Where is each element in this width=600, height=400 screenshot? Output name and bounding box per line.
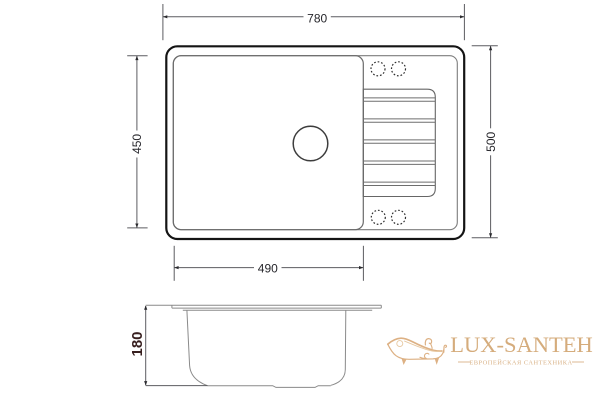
svg-text:ЕВРОПЕЙСКАЯ САНТЕХНИКА: ЕВРОПЕЙСКАЯ САНТЕХНИКА xyxy=(469,359,572,367)
svg-text:LUX-SANTEH: LUX-SANTEH xyxy=(450,332,592,357)
svg-text:500: 500 xyxy=(484,131,498,151)
svg-text:490: 490 xyxy=(258,262,278,276)
svg-text:180: 180 xyxy=(129,331,146,356)
svg-text:450: 450 xyxy=(130,134,144,154)
svg-text:780: 780 xyxy=(307,11,327,25)
